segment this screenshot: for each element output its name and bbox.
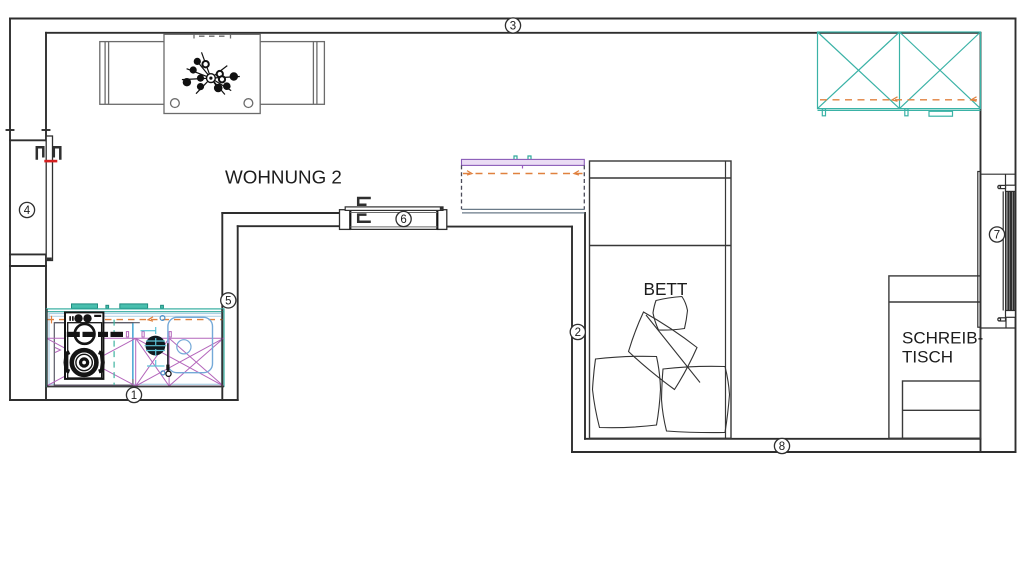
svg-text:5: 5: [225, 296, 231, 308]
svg-text:2: 2: [575, 327, 581, 339]
svg-text:TISCH: TISCH: [902, 348, 953, 367]
svg-text:BETT: BETT: [644, 279, 688, 299]
svg-text:3: 3: [510, 21, 516, 33]
svg-text:4: 4: [24, 205, 31, 217]
svg-text:SCHREIB-: SCHREIB-: [902, 329, 983, 348]
svg-text:6: 6: [400, 214, 406, 226]
svg-text:1: 1: [131, 390, 137, 402]
svg-text:8: 8: [779, 441, 785, 453]
svg-text:WOHNUNG 2: WOHNUNG 2: [225, 167, 342, 188]
svg-text:7: 7: [994, 230, 1000, 242]
